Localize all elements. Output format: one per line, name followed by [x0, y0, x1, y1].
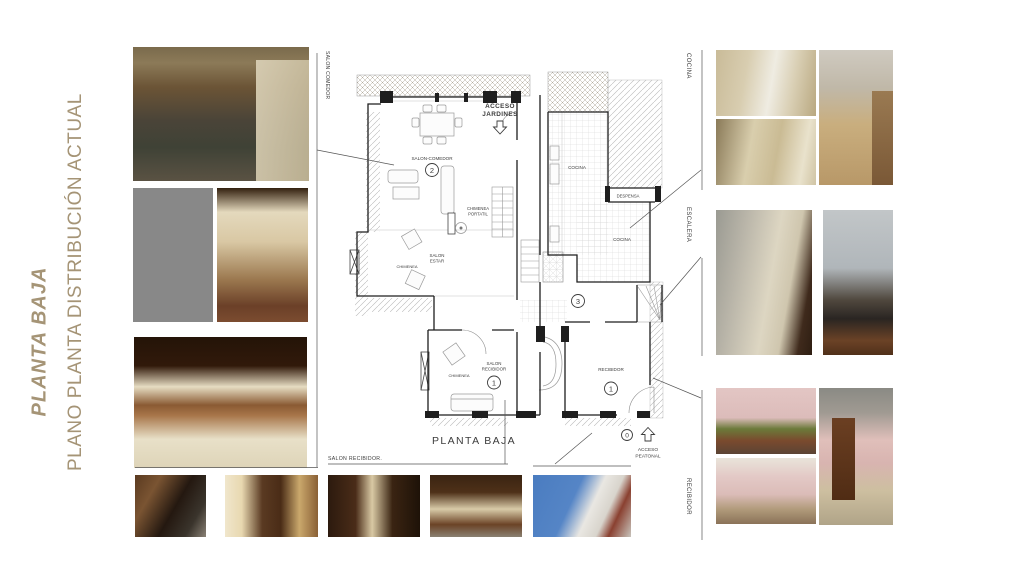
vertical-label-salon-comedor: SALON COMEDOR [324, 51, 330, 99]
plan-furniture [388, 105, 562, 411]
room-number-1a: 1 [492, 378, 496, 387]
label-salon-recibidor-2: RECIBIDOR [482, 367, 506, 372]
jardines-arrow-down-icon [494, 121, 507, 134]
floor-plan: ACCESO JARDINES SALON-COMEDOR 2 CHIMENEA… [0, 0, 1024, 577]
label-salon-estar-1: SALON [430, 253, 445, 258]
peatonal-arrow-up-icon [642, 428, 655, 442]
label-acceso-peatonal-1: ACCESO [638, 447, 659, 453]
plan-caption: PLANTA BAJA [432, 435, 516, 447]
room-number-1b: 1 [609, 384, 613, 393]
room-number-3: 3 [576, 297, 580, 306]
label-chimenea-recibidor: CHIMENEA [448, 373, 469, 378]
label-cocina-upper: COCINA [568, 165, 587, 170]
room-number-2: 2 [430, 166, 434, 175]
label-acceso-jardines-1: ACCESO [485, 103, 515, 110]
label-acceso-peatonal-2: PEATONAL [635, 454, 660, 460]
vertical-label-escalera: ESCALERA [685, 207, 691, 242]
vertical-label-cocina: COCINA [685, 53, 691, 79]
label-chimenea-estar: CHIMENEA [396, 264, 417, 269]
label-salon-comedor: SALON-COMEDOR [411, 156, 453, 161]
label-salon-estar-2: ESTAR [430, 259, 444, 264]
presentation-slide: PLANTA BAJA PLANO PLANTA DISTRIBUCIÓN AC… [0, 0, 1024, 577]
label-recibidor: RECIBIDOR [598, 367, 624, 372]
vertical-label-recibidor: RECIBIDOR [685, 478, 691, 515]
label-salon-recibidor-1: SALON [487, 361, 502, 366]
label-despensa: DESPENSA [617, 194, 640, 199]
bottom-label-salon-recibidor: SALON RECIBIDOR. [328, 456, 382, 462]
label-chimenea-portatil-1: CHIMENEA [467, 206, 489, 211]
label-cocina-lower: COCINA [613, 237, 632, 242]
room-number-0: 0 [625, 433, 629, 440]
label-chimenea-portatil-2: PORTATIL [468, 212, 488, 217]
label-acceso-jardines-2: JARDINES [482, 111, 518, 118]
